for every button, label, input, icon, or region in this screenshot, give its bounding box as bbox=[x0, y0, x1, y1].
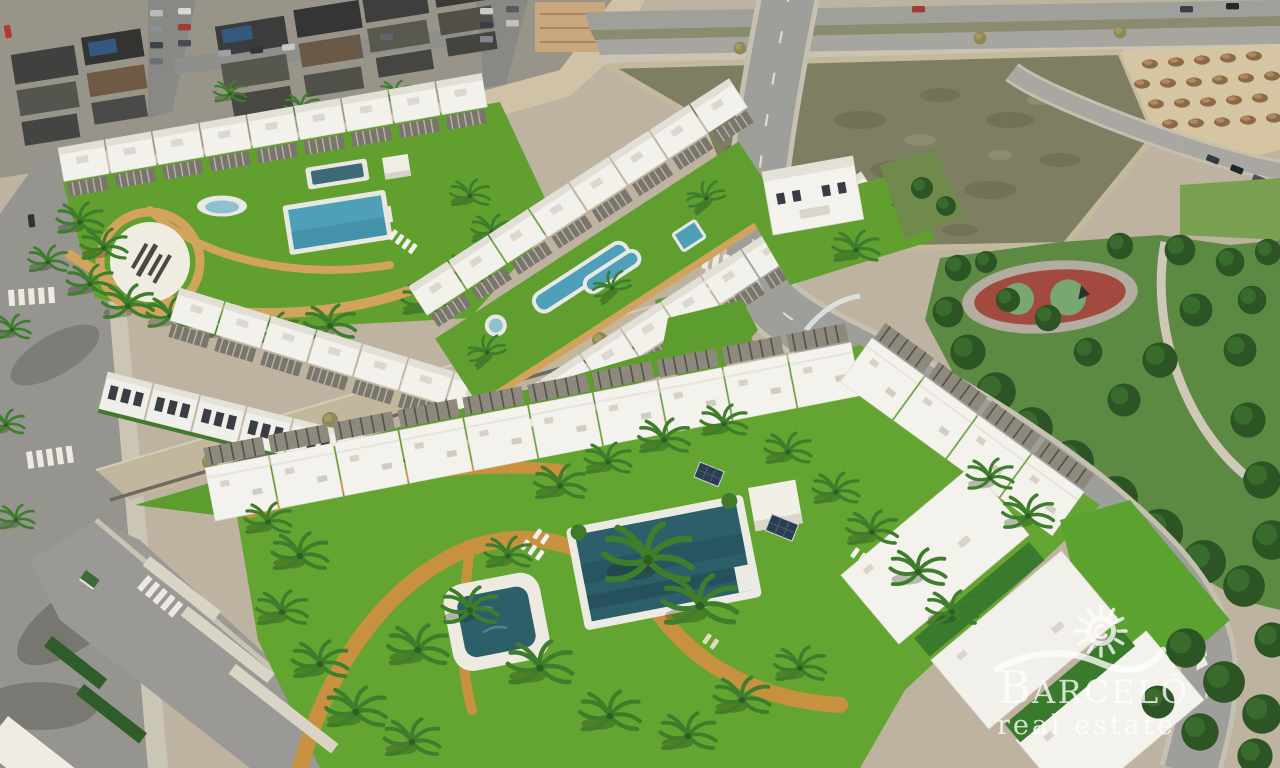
aerial-render-scene: B ARCELÓ real estate bbox=[0, 0, 1280, 768]
watermark-brand: ARCELÓ bbox=[1031, 673, 1190, 711]
aerial-render-screenshot: B ARCELÓ real estate bbox=[0, 0, 1280, 768]
red-car bbox=[912, 6, 925, 12]
round-fountain bbox=[197, 196, 247, 217]
watermark-brand-initial: B bbox=[998, 661, 1032, 714]
pool-house-cube bbox=[382, 154, 411, 180]
watermark-tagline: real estate bbox=[997, 710, 1176, 741]
logo-plaza bbox=[110, 222, 190, 302]
parked-car bbox=[28, 214, 36, 228]
